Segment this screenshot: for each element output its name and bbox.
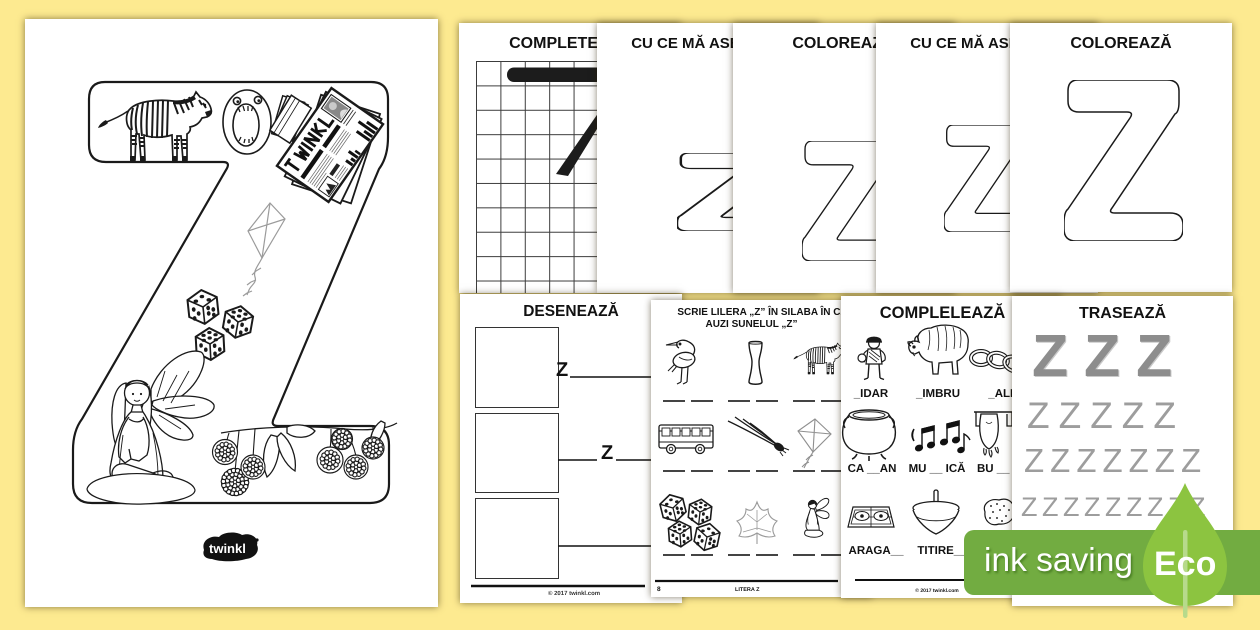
svg-text:© 2017 twinkl.com: © 2017 twinkl.com	[915, 588, 959, 594]
svg-text:twinkl: twinkl	[209, 541, 246, 556]
svg-text:Eco: Eco	[1154, 545, 1216, 583]
svg-text:LITERA Z: LITERA Z	[735, 587, 760, 593]
svg-text:Z: Z	[601, 442, 613, 464]
svg-text:CA __AN: CA __AN	[848, 463, 897, 475]
svg-text:ARAGA__: ARAGA__	[849, 545, 905, 557]
svg-text:8: 8	[657, 586, 661, 593]
svg-text:_IMBRU: _IMBRU	[915, 388, 960, 400]
svg-text:_IDAR: _IDAR	[853, 388, 889, 400]
svg-text:© 2017 twinkl.com: © 2017 twinkl.com	[548, 590, 600, 597]
svg-text:MU __ ICĂ: MU __ ICĂ	[909, 461, 966, 475]
svg-text:Z: Z	[556, 359, 568, 381]
svg-text:TITIRE__: TITIRE__	[917, 545, 967, 557]
